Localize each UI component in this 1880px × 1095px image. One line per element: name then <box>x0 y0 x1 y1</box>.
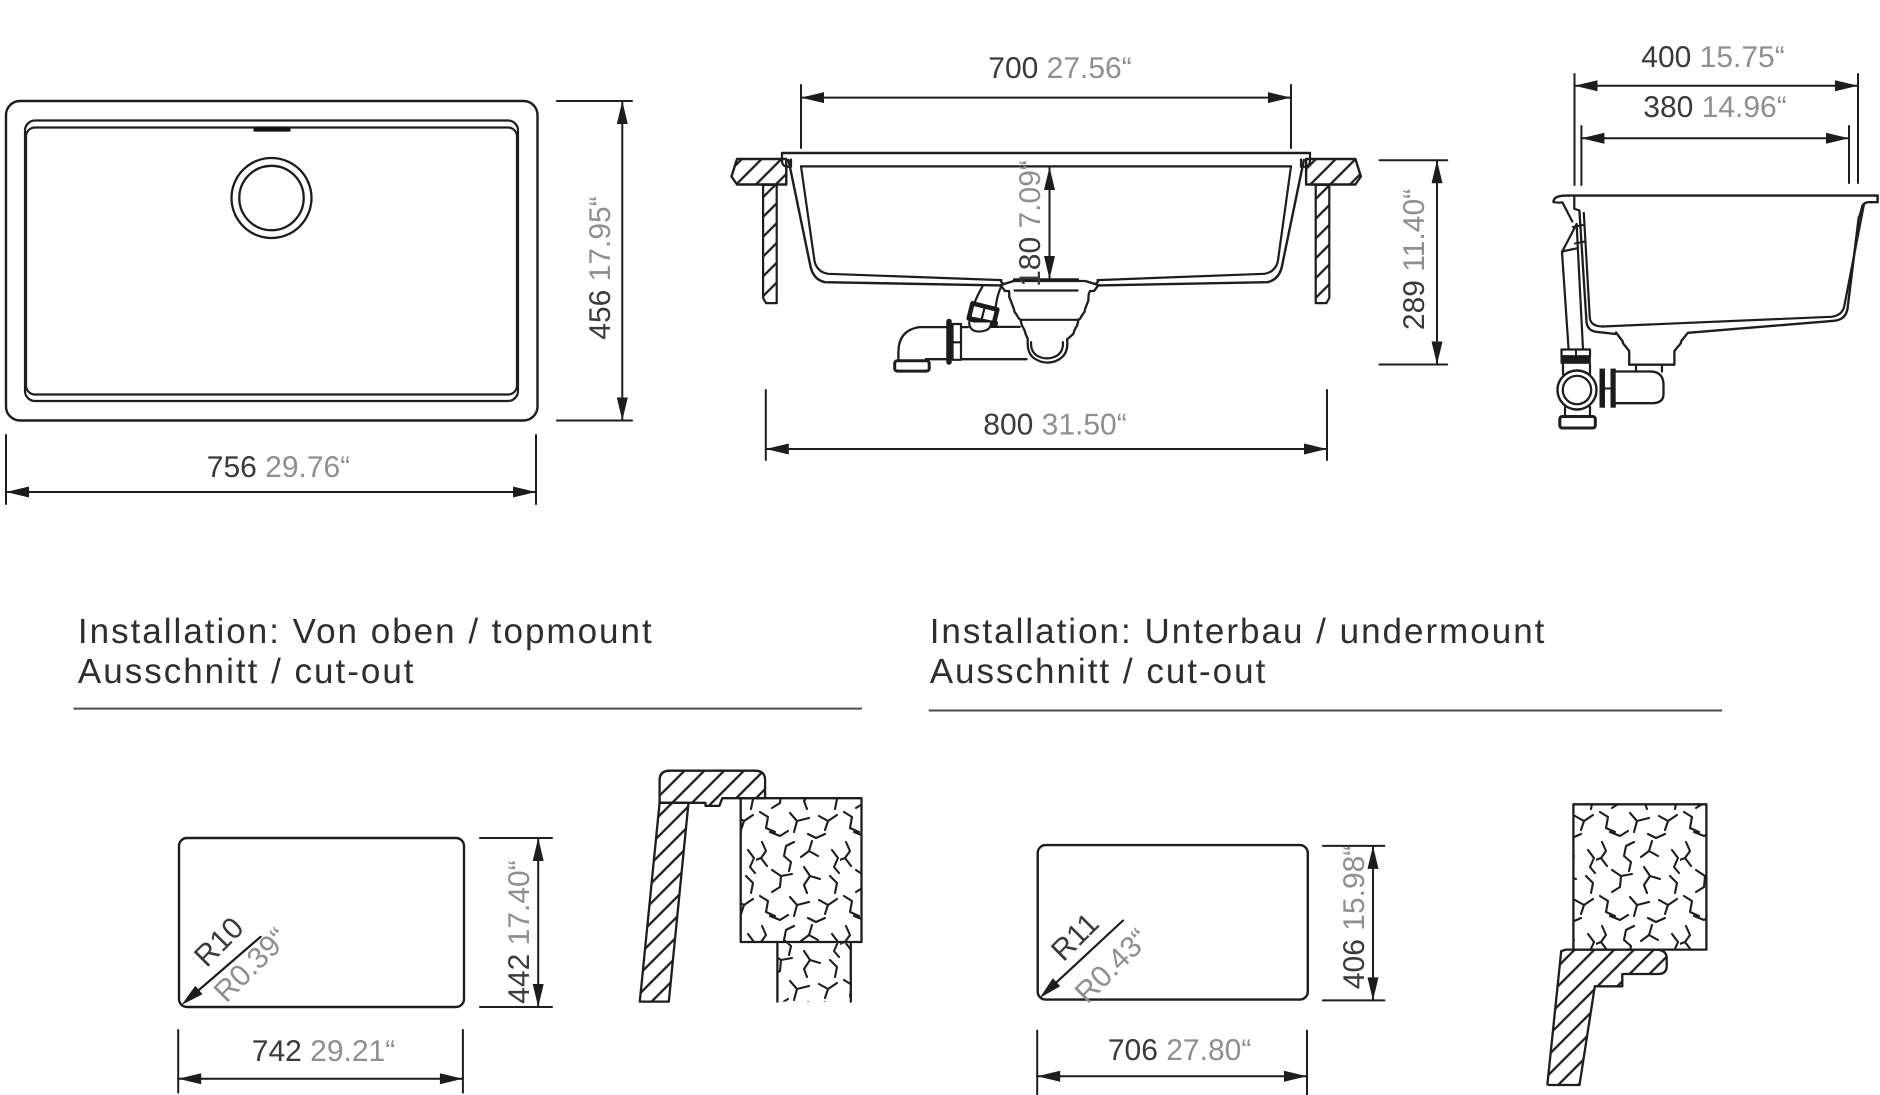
svg-text:Installation: Von oben / topmo: Installation: Von oben / topmount <box>78 612 654 651</box>
svg-text:180 7.09“: 180 7.09“ <box>1014 160 1047 287</box>
svg-text:706 27.80“: 706 27.80“ <box>1108 1034 1251 1067</box>
svg-text:Ausschnitt / cut-out: Ausschnitt / cut-out <box>930 652 1268 691</box>
svg-text:Ausschnitt / cut-out: Ausschnitt / cut-out <box>78 652 416 691</box>
svg-text:700 27.56“: 700 27.56“ <box>988 52 1131 85</box>
svg-text:800 31.50“: 800 31.50“ <box>983 409 1126 442</box>
svg-text:380 14.96“: 380 14.96“ <box>1643 91 1786 124</box>
svg-text:289 11.40“: 289 11.40“ <box>1398 189 1431 330</box>
svg-text:442 17.40“: 442 17.40“ <box>503 860 536 1003</box>
svg-text:400 15.75“: 400 15.75“ <box>1641 41 1784 74</box>
svg-text:756 29.76“: 756 29.76“ <box>207 451 350 484</box>
svg-text:456 17.95“: 456 17.95“ <box>584 196 617 339</box>
svg-text:406 15.98“: 406 15.98“ <box>1338 846 1371 989</box>
svg-text:Installation: Unterbau / under: Installation: Unterbau / undermount <box>930 612 1547 651</box>
svg-text:742 29.21“: 742 29.21“ <box>252 1035 395 1068</box>
